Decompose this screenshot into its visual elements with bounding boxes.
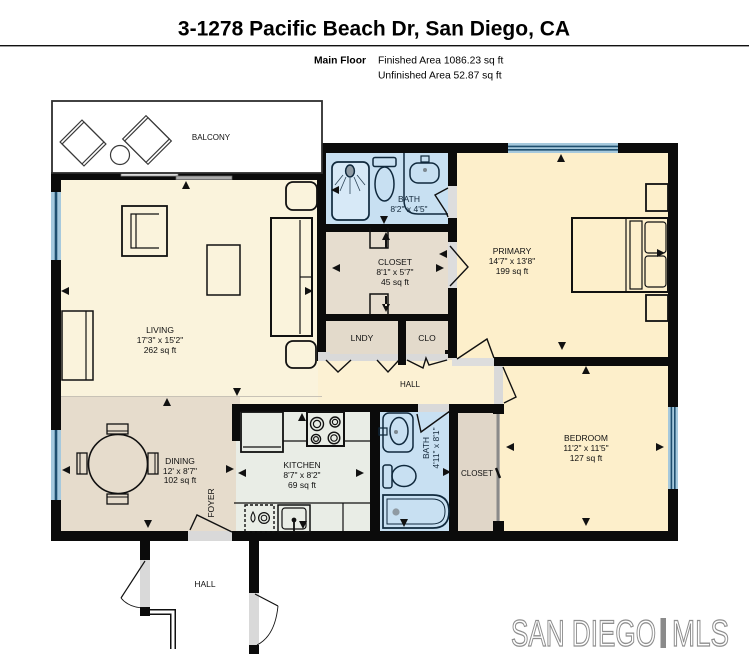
svg-text:262 sq ft: 262 sq ft — [144, 345, 177, 355]
svg-text:MLS: MLS — [672, 613, 729, 654]
svg-text:CLOSET: CLOSET — [378, 257, 412, 267]
svg-text:SAN DIEGO: SAN DIEGO — [511, 613, 656, 654]
svg-text:KITCHEN: KITCHEN — [283, 460, 320, 470]
svg-text:127 sq ft: 127 sq ft — [570, 453, 603, 463]
svg-text:Finished Area 1086.23 sq ft: Finished Area 1086.23 sq ft — [378, 56, 504, 67]
svg-text:DINING: DINING — [165, 456, 195, 466]
svg-text:69 sq ft: 69 sq ft — [288, 480, 317, 490]
svg-text:BALCONY: BALCONY — [192, 133, 231, 142]
svg-text:HALL: HALL — [400, 380, 421, 389]
svg-text:BATH: BATH — [398, 194, 420, 204]
svg-text:PRIMARY: PRIMARY — [493, 246, 532, 256]
svg-text:45 sq ft: 45 sq ft — [381, 277, 410, 287]
svg-text:LNDY: LNDY — [351, 333, 374, 343]
svg-text:199 sq ft: 199 sq ft — [496, 266, 529, 276]
svg-text:3-1278 Pacific Beach Dr, San D: 3-1278 Pacific Beach Dr, San Diego, CA — [178, 18, 570, 41]
svg-text:BATH: BATH — [421, 437, 431, 459]
svg-text:8'7" x 8'2": 8'7" x 8'2" — [283, 470, 320, 480]
svg-text:102 sq ft: 102 sq ft — [164, 475, 197, 485]
svg-text:FOYER: FOYER — [206, 488, 216, 517]
svg-text:8'1" x 5'7": 8'1" x 5'7" — [376, 267, 413, 277]
svg-text:CLOSET: CLOSET — [461, 469, 493, 478]
svg-text:LIVING: LIVING — [146, 325, 174, 335]
svg-text:CLO: CLO — [418, 333, 436, 343]
svg-text:14'7" x 13'8": 14'7" x 13'8" — [489, 256, 536, 266]
svg-text:4'11" x 8'1": 4'11" x 8'1" — [431, 427, 441, 468]
svg-text:BEDROOM: BEDROOM — [564, 433, 608, 443]
svg-text:Unfinished Area 52.87 sq ft: Unfinished Area 52.87 sq ft — [378, 71, 502, 82]
svg-text:17'3" x 15'2": 17'3" x 15'2" — [137, 335, 184, 345]
svg-text:HALL: HALL — [194, 579, 216, 589]
svg-text:Main Floor: Main Floor — [314, 56, 366, 67]
svg-text:11'2" x 11'5": 11'2" x 11'5" — [563, 443, 608, 453]
